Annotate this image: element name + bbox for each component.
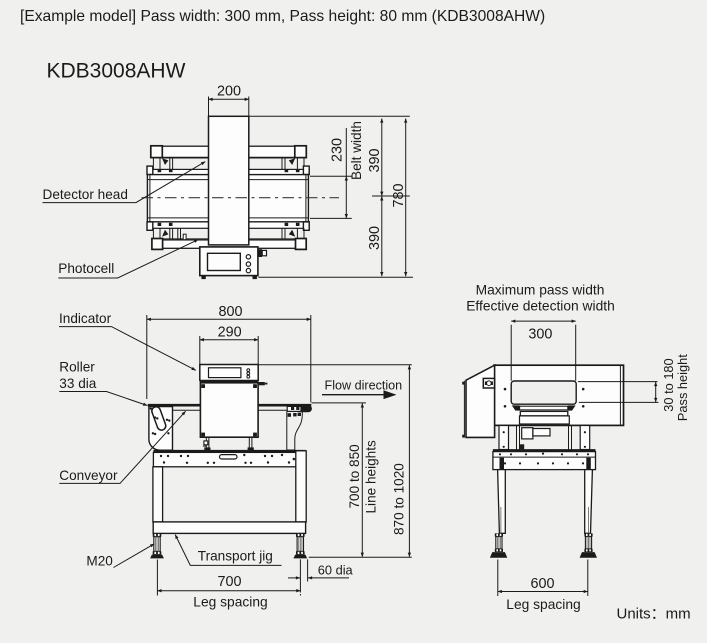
svg-text:Transport jig: Transport jig	[198, 549, 273, 564]
svg-text:Line heights: Line heights	[364, 440, 379, 514]
svg-text:390: 390	[367, 226, 383, 250]
svg-text:200: 200	[217, 84, 241, 100]
svg-text:Detector head: Detector head	[43, 187, 128, 202]
svg-text:Maximum pass width: Maximum pass width	[476, 283, 605, 298]
svg-text:Roller: Roller	[59, 359, 95, 374]
svg-text:30 to 180: 30 to 180	[661, 358, 676, 411]
svg-text:230: 230	[330, 138, 346, 162]
svg-text:870 to 1020: 870 to 1020	[392, 463, 407, 535]
svg-text:600: 600	[530, 576, 554, 592]
svg-text:Effective detection width: Effective detection width	[466, 298, 615, 313]
svg-text:700 to 850: 700 to 850	[347, 444, 362, 509]
svg-text:Leg spacing: Leg spacing	[506, 597, 580, 612]
svg-text:Conveyor: Conveyor	[59, 468, 118, 483]
svg-text:300: 300	[528, 327, 552, 343]
svg-text:Flow direction: Flow direction	[325, 378, 403, 392]
svg-text:Units：mm: Units：mm	[617, 605, 691, 622]
svg-text:60 dia: 60 dia	[318, 563, 354, 578]
svg-text:Belt width: Belt width	[349, 121, 364, 180]
svg-text:Pass height: Pass height	[675, 354, 690, 421]
svg-text:KDB3008AHW: KDB3008AHW	[47, 60, 186, 83]
svg-text:M20: M20	[86, 553, 113, 568]
svg-text:780: 780	[391, 183, 407, 207]
svg-text:800: 800	[218, 304, 242, 320]
svg-text:Leg spacing: Leg spacing	[193, 595, 267, 610]
svg-text:700: 700	[217, 574, 241, 590]
svg-text:290: 290	[218, 325, 242, 341]
svg-text:33 dia: 33 dia	[59, 376, 96, 391]
svg-text:390: 390	[367, 148, 383, 172]
svg-text:Photocell: Photocell	[58, 261, 114, 276]
svg-text:[Example model] Pass width: 30: [Example model] Pass width: 300 mm, Pass…	[20, 8, 545, 25]
svg-text:Indicator: Indicator	[59, 311, 112, 326]
